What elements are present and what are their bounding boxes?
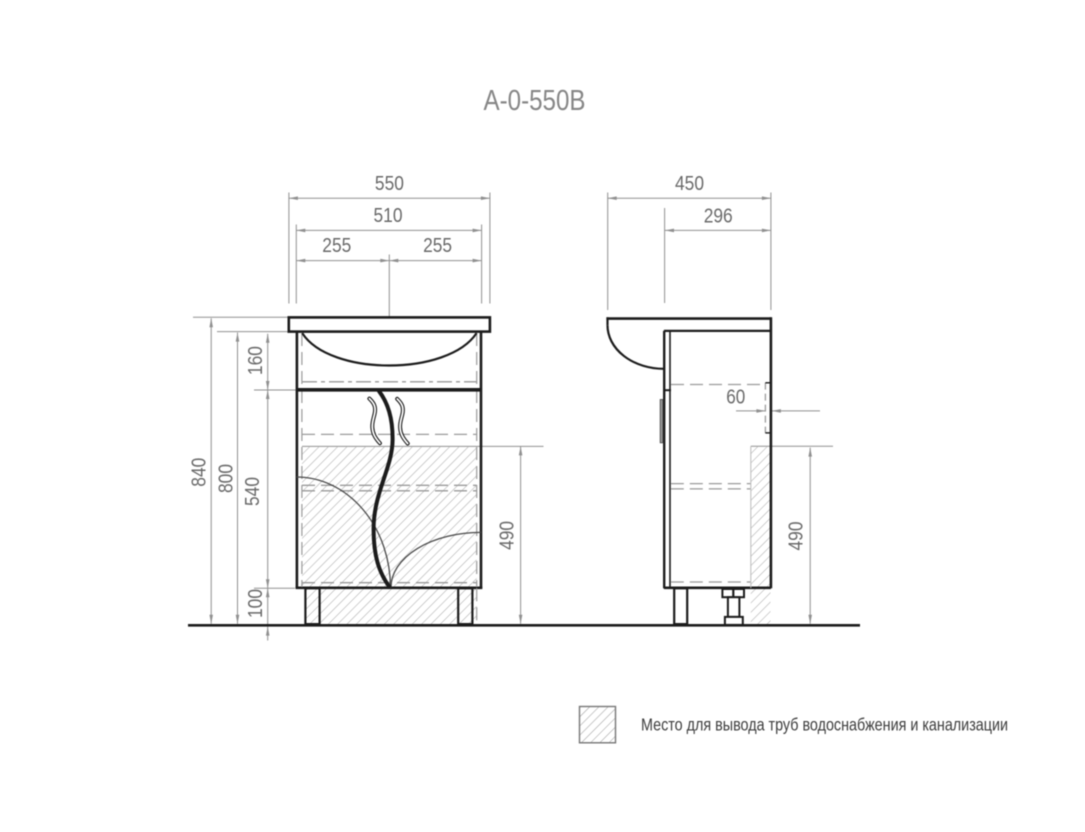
svg-text:490: 490	[786, 522, 808, 551]
svg-text:490: 490	[497, 521, 519, 550]
svg-text:800: 800	[215, 464, 237, 493]
svg-text:510: 510	[374, 205, 403, 227]
svg-text:160: 160	[245, 346, 267, 375]
svg-text:255: 255	[423, 235, 452, 257]
svg-text:А-0-550В: А-0-550В	[484, 85, 586, 117]
svg-text:Место для вывода труб водоснаб: Место для вывода труб водоснабжения и ка…	[641, 715, 1008, 735]
svg-text:450: 450	[675, 173, 704, 195]
svg-text:540: 540	[242, 477, 264, 506]
svg-text:840: 840	[188, 458, 210, 487]
svg-text:100: 100	[245, 589, 267, 618]
svg-text:255: 255	[322, 235, 351, 257]
svg-text:60: 60	[726, 387, 745, 409]
svg-text:550: 550	[375, 173, 404, 195]
svg-text:296: 296	[704, 206, 733, 228]
